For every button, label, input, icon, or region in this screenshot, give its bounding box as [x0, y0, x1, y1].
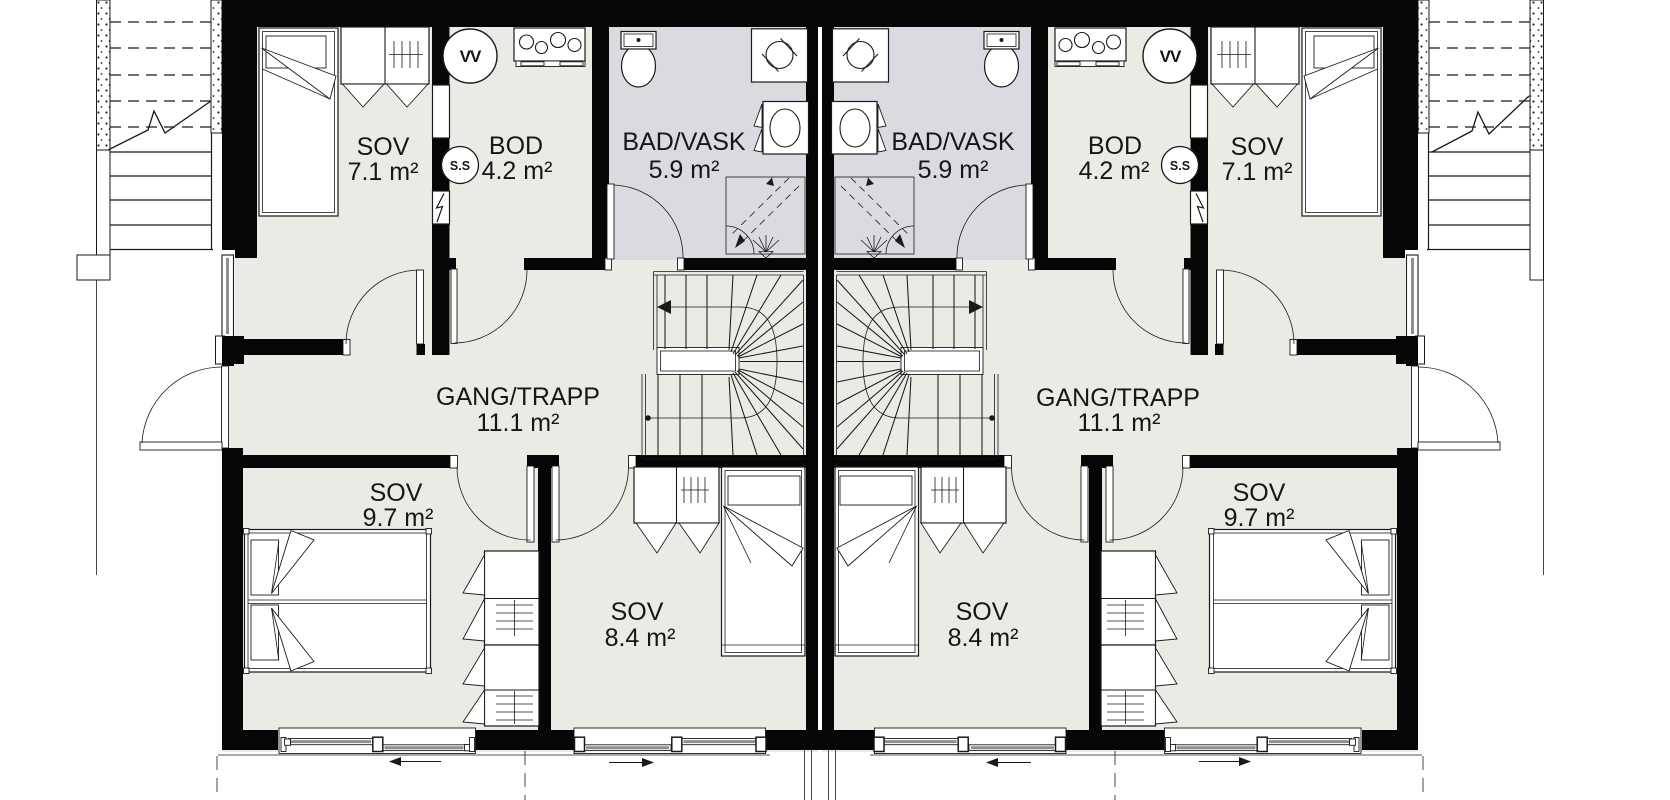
svg-text:SOV: SOV [1233, 479, 1286, 507]
svg-text:SOV: SOV [1231, 133, 1284, 161]
svg-text:GANG/TRAPP: GANG/TRAPP [1036, 384, 1200, 412]
svg-text:5.9 m²: 5.9 m² [918, 156, 989, 184]
svg-text:S.S: S.S [450, 159, 470, 173]
svg-text:SOV: SOV [370, 479, 423, 507]
svg-text:BAD/VASK: BAD/VASK [891, 128, 1015, 156]
svg-text:8.4 m²: 8.4 m² [948, 624, 1019, 652]
svg-text:VV: VV [460, 47, 482, 66]
svg-text:SOV: SOV [357, 133, 410, 161]
svg-text:SOV: SOV [956, 598, 1009, 626]
svg-text:BAD/VASK: BAD/VASK [622, 128, 746, 156]
svg-text:BOD: BOD [1088, 132, 1142, 160]
svg-text:9.7 m²: 9.7 m² [1224, 504, 1295, 532]
svg-text:7.1 m²: 7.1 m² [1222, 158, 1293, 186]
svg-text:11.1 m²: 11.1 m² [1078, 409, 1161, 437]
svg-text:GANG/TRAPP: GANG/TRAPP [436, 383, 600, 411]
svg-text:5.9 m²: 5.9 m² [649, 156, 720, 184]
svg-text:8.4 m²: 8.4 m² [605, 624, 676, 652]
svg-text:S.S: S.S [1170, 159, 1190, 173]
svg-text:4.2 m²: 4.2 m² [1079, 157, 1150, 185]
svg-text:9.7 m²: 9.7 m² [363, 504, 434, 532]
svg-text:SOV: SOV [611, 598, 664, 626]
svg-text:7.1 m²: 7.1 m² [348, 158, 419, 186]
svg-text:4.2 m²: 4.2 m² [482, 157, 553, 185]
svg-text:BOD: BOD [489, 132, 543, 160]
svg-text:11.1 m²: 11.1 m² [477, 409, 560, 437]
svg-text:VV: VV [1160, 47, 1182, 66]
